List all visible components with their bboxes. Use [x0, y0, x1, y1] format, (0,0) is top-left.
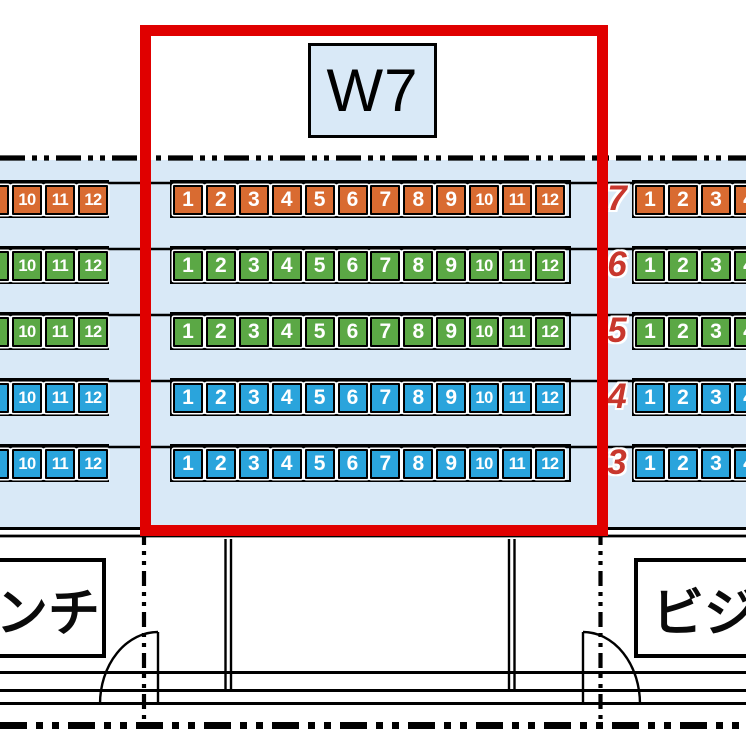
seat-r7-8[interactable]: 8 [403, 185, 433, 215]
seat-r4-4[interactable]: 4 [272, 383, 302, 413]
seat-r5-12[interactable]: 12 [535, 317, 565, 347]
seat-r7-4[interactable]: 4 [272, 185, 302, 215]
seat-r4-9[interactable]: 9 [0, 383, 9, 413]
seat-r6-6[interactable]: 6 [338, 251, 368, 281]
seat-r3-3[interactable]: 3 [701, 449, 731, 479]
seat-r6-3[interactable]: 3 [239, 251, 269, 281]
seat-r5-1[interactable]: 1 [635, 317, 665, 347]
seat-r7-3[interactable]: 3 [239, 185, 269, 215]
section-label-box: W7 [308, 43, 437, 138]
home-bench-label: ベンチ [0, 571, 100, 646]
seat-r4-12[interactable]: 12 [535, 383, 565, 413]
seat-r7-1[interactable]: 1 [173, 185, 203, 215]
seat-r4-11[interactable]: 11 [45, 383, 75, 413]
seat-r5-9[interactable]: 9 [0, 317, 9, 347]
section-label: W7 [327, 56, 419, 125]
seat-r3-11[interactable]: 11 [45, 449, 75, 479]
row-number-label-7: 7 [602, 181, 632, 217]
seat-r4-9[interactable]: 9 [436, 383, 466, 413]
seat-r5-3[interactable]: 3 [239, 317, 269, 347]
seat-r4-8[interactable]: 8 [403, 383, 433, 413]
seat-r6-4[interactable]: 4 [272, 251, 302, 281]
dugout-posts [226, 539, 515, 691]
seat-r3-9[interactable]: 9 [436, 449, 466, 479]
seat-r7-4[interactable]: 4 [734, 185, 746, 215]
seat-r3-2[interactable]: 2 [206, 449, 236, 479]
seat-r3-8[interactable]: 8 [403, 449, 433, 479]
visitor-bench-label: ビジター [652, 571, 746, 646]
seat-r7-2[interactable]: 2 [206, 185, 236, 215]
seat-r3-6[interactable]: 6 [338, 449, 368, 479]
seat-r6-2[interactable]: 2 [668, 251, 698, 281]
seat-r5-2[interactable]: 2 [668, 317, 698, 347]
seat-r7-10[interactable]: 10 [12, 185, 42, 215]
seat-r7-2[interactable]: 2 [668, 185, 698, 215]
seat-r6-1[interactable]: 1 [173, 251, 203, 281]
seat-r6-9[interactable]: 9 [436, 251, 466, 281]
stand-front-wall [0, 529, 746, 537]
seat-r3-3[interactable]: 3 [239, 449, 269, 479]
seat-r4-10[interactable]: 10 [12, 383, 42, 413]
seat-r7-9[interactable]: 9 [0, 185, 9, 215]
seat-r7-9[interactable]: 9 [436, 185, 466, 215]
door-swing-right [583, 632, 640, 704]
seat-r4-10[interactable]: 10 [469, 383, 499, 413]
seat-r6-5[interactable]: 5 [305, 251, 335, 281]
dugout-rails [0, 673, 746, 704]
seat-r7-11[interactable]: 11 [502, 185, 532, 215]
seat-r4-11[interactable]: 11 [502, 383, 532, 413]
seat-r3-4[interactable]: 4 [734, 449, 746, 479]
seat-r6-10[interactable]: 10 [469, 251, 499, 281]
seat-r6-12[interactable]: 12 [78, 251, 108, 281]
seat-r4-5[interactable]: 5 [305, 383, 335, 413]
seat-r5-11[interactable]: 11 [502, 317, 532, 347]
seat-r4-7[interactable]: 7 [370, 383, 400, 413]
seat-r6-4[interactable]: 4 [734, 251, 746, 281]
row-number-label-5: 5 [602, 313, 632, 349]
seat-r7-10[interactable]: 10 [469, 185, 499, 215]
seat-r7-12[interactable]: 12 [78, 185, 108, 215]
seat-r4-12[interactable]: 12 [78, 383, 108, 413]
home-bench-box: ベンチ [0, 558, 106, 658]
visitor-bench-box: ビジター [634, 558, 746, 658]
seat-r7-3[interactable]: 3 [701, 185, 731, 215]
seat-r5-5[interactable]: 5 [305, 317, 335, 347]
seat-r7-11[interactable]: 11 [45, 185, 75, 215]
seat-r6-7[interactable]: 7 [370, 251, 400, 281]
seat-r3-5[interactable]: 5 [305, 449, 335, 479]
seat-r6-11[interactable]: 11 [45, 251, 75, 281]
seat-r4-3[interactable]: 3 [239, 383, 269, 413]
seat-r5-3[interactable]: 3 [701, 317, 731, 347]
seat-r4-4[interactable]: 4 [734, 383, 746, 413]
seat-r5-12[interactable]: 12 [78, 317, 108, 347]
seat-r6-11[interactable]: 11 [502, 251, 532, 281]
seat-r5-2[interactable]: 2 [206, 317, 236, 347]
row-number-label-4: 4 [602, 379, 632, 415]
seat-r3-10[interactable]: 10 [12, 449, 42, 479]
seat-r4-2[interactable]: 2 [206, 383, 236, 413]
seat-r4-1[interactable]: 1 [635, 383, 665, 413]
seat-r6-10[interactable]: 10 [12, 251, 42, 281]
row-number-label-3: 3 [602, 445, 632, 481]
seat-r3-12[interactable]: 12 [78, 449, 108, 479]
seat-r6-9[interactable]: 9 [0, 251, 9, 281]
seat-r7-6[interactable]: 6 [338, 185, 368, 215]
seat-r5-6[interactable]: 6 [338, 317, 368, 347]
seat-r6-8[interactable]: 8 [403, 251, 433, 281]
seat-r3-4[interactable]: 4 [272, 449, 302, 479]
seat-r7-7[interactable]: 7 [370, 185, 400, 215]
seat-r3-12[interactable]: 12 [535, 449, 565, 479]
seat-r5-1[interactable]: 1 [173, 317, 203, 347]
seat-r4-6[interactable]: 6 [338, 383, 368, 413]
seat-r7-12[interactable]: 12 [535, 185, 565, 215]
row-number-label-6: 6 [602, 247, 632, 283]
seat-r5-7[interactable]: 7 [370, 317, 400, 347]
seat-r6-1[interactable]: 1 [635, 251, 665, 281]
seat-r4-3[interactable]: 3 [701, 383, 731, 413]
seat-r4-1[interactable]: 1 [173, 383, 203, 413]
seat-r3-9[interactable]: 9 [0, 449, 9, 479]
seat-r5-9[interactable]: 9 [436, 317, 466, 347]
seat-r5-11[interactable]: 11 [45, 317, 75, 347]
seat-r7-1[interactable]: 1 [635, 185, 665, 215]
seat-r3-1[interactable]: 1 [173, 449, 203, 479]
seat-r5-4[interactable]: 4 [272, 317, 302, 347]
door-swing-left [100, 632, 158, 704]
seat-r5-8[interactable]: 8 [403, 317, 433, 347]
seat-r3-7[interactable]: 7 [370, 449, 400, 479]
seat-r5-4[interactable]: 4 [734, 317, 746, 347]
seat-r3-10[interactable]: 10 [469, 449, 499, 479]
seat-r3-1[interactable]: 1 [635, 449, 665, 479]
seat-r3-2[interactable]: 2 [668, 449, 698, 479]
seat-r7-5[interactable]: 5 [305, 185, 335, 215]
seat-r6-2[interactable]: 2 [206, 251, 236, 281]
seat-r5-10[interactable]: 10 [469, 317, 499, 347]
seat-r5-10[interactable]: 10 [12, 317, 42, 347]
seat-map: W7 9101112123456789101112123479101112123… [0, 0, 746, 756]
seat-r6-12[interactable]: 12 [535, 251, 565, 281]
seat-r6-3[interactable]: 3 [701, 251, 731, 281]
seat-r4-2[interactable]: 2 [668, 383, 698, 413]
seat-r3-11[interactable]: 11 [502, 449, 532, 479]
